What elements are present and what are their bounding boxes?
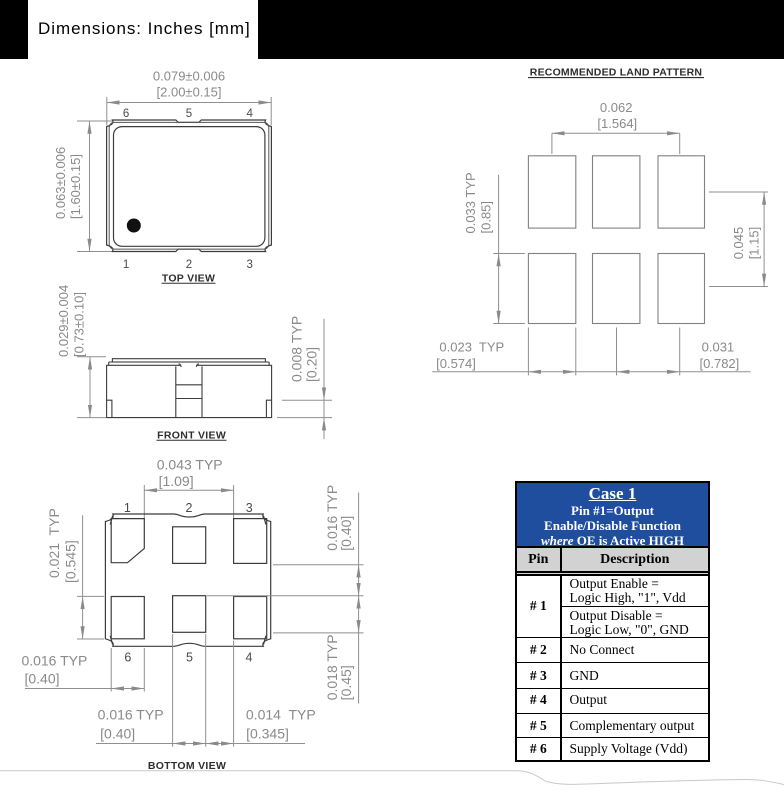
svg-text:0.014 TYP: 0.014 TYP	[246, 706, 316, 722]
svg-text:3: 3	[246, 259, 252, 271]
svg-text:4: 4	[246, 108, 253, 120]
svg-text:[0.20]: [0.20]	[304, 347, 320, 382]
svg-text:6: 6	[123, 108, 129, 120]
svg-text:FRONT VIEW: FRONT VIEW	[157, 429, 226, 441]
svg-text:[0.574]: [0.574]	[436, 356, 476, 371]
svg-text:BOTTOM VIEW: BOTTOM VIEW	[148, 760, 226, 772]
svg-text:0.045: 0.045	[731, 227, 746, 260]
svg-text:5: 5	[186, 651, 193, 665]
svg-text:0.029±0.004: 0.029±0.004	[56, 285, 71, 357]
svg-text:[0.40]: [0.40]	[24, 671, 59, 687]
svg-text:3: 3	[246, 501, 253, 515]
svg-text:0.021 TYP: 0.021 TYP	[46, 508, 62, 578]
svg-text:[1.09]: [1.09]	[159, 473, 194, 489]
svg-text:5: 5	[186, 108, 192, 120]
svg-text:[1.564]: [1.564]	[597, 116, 637, 131]
svg-text:0.016 TYP: 0.016 TYP	[21, 653, 87, 669]
svg-text:[0.40]: [0.40]	[100, 726, 135, 742]
svg-text:1: 1	[123, 259, 129, 271]
svg-text:[1.15]: [1.15]	[747, 227, 762, 260]
svg-text:4: 4	[246, 651, 253, 665]
svg-text:[0.782]: [0.782]	[700, 356, 740, 371]
svg-text:6: 6	[124, 651, 131, 665]
svg-text:[0.40]: [0.40]	[338, 516, 354, 551]
svg-text:RECOMMENDED LAND PATTERN: RECOMMENDED LAND PATTERN	[530, 66, 702, 78]
svg-text:TOP VIEW: TOP VIEW	[162, 272, 215, 284]
svg-text:[0.73±0.10]: [0.73±0.10]	[72, 292, 87, 357]
svg-text:[0.45]: [0.45]	[338, 665, 354, 700]
svg-text:0.043 TYP: 0.043 TYP	[157, 457, 223, 473]
svg-text:[0.345]: [0.345]	[246, 726, 289, 742]
svg-text:[0.85]: [0.85]	[479, 201, 494, 234]
svg-text:0.023 TYP: 0.023 TYP	[439, 339, 504, 354]
svg-text:0.033 TYP: 0.033 TYP	[463, 172, 478, 233]
svg-text:[0.545]: [0.545]	[63, 540, 79, 583]
svg-text:2: 2	[186, 501, 193, 515]
svg-text:[1.60±0.15]: [1.60±0.15]	[68, 154, 83, 219]
svg-text:0.063±0.006: 0.063±0.006	[53, 147, 68, 219]
svg-text:0.008 TYP: 0.008 TYP	[289, 316, 305, 382]
svg-text:0.079±0.006: 0.079±0.006	[153, 69, 225, 84]
svg-text:0.016 TYP: 0.016 TYP	[98, 706, 164, 722]
svg-text:0.031: 0.031	[702, 339, 735, 354]
svg-text:2: 2	[186, 259, 192, 271]
svg-text:[2.00±0.15]: [2.00±0.15]	[157, 85, 222, 100]
svg-text:0.062: 0.062	[600, 100, 633, 115]
svg-text:1: 1	[124, 501, 131, 515]
